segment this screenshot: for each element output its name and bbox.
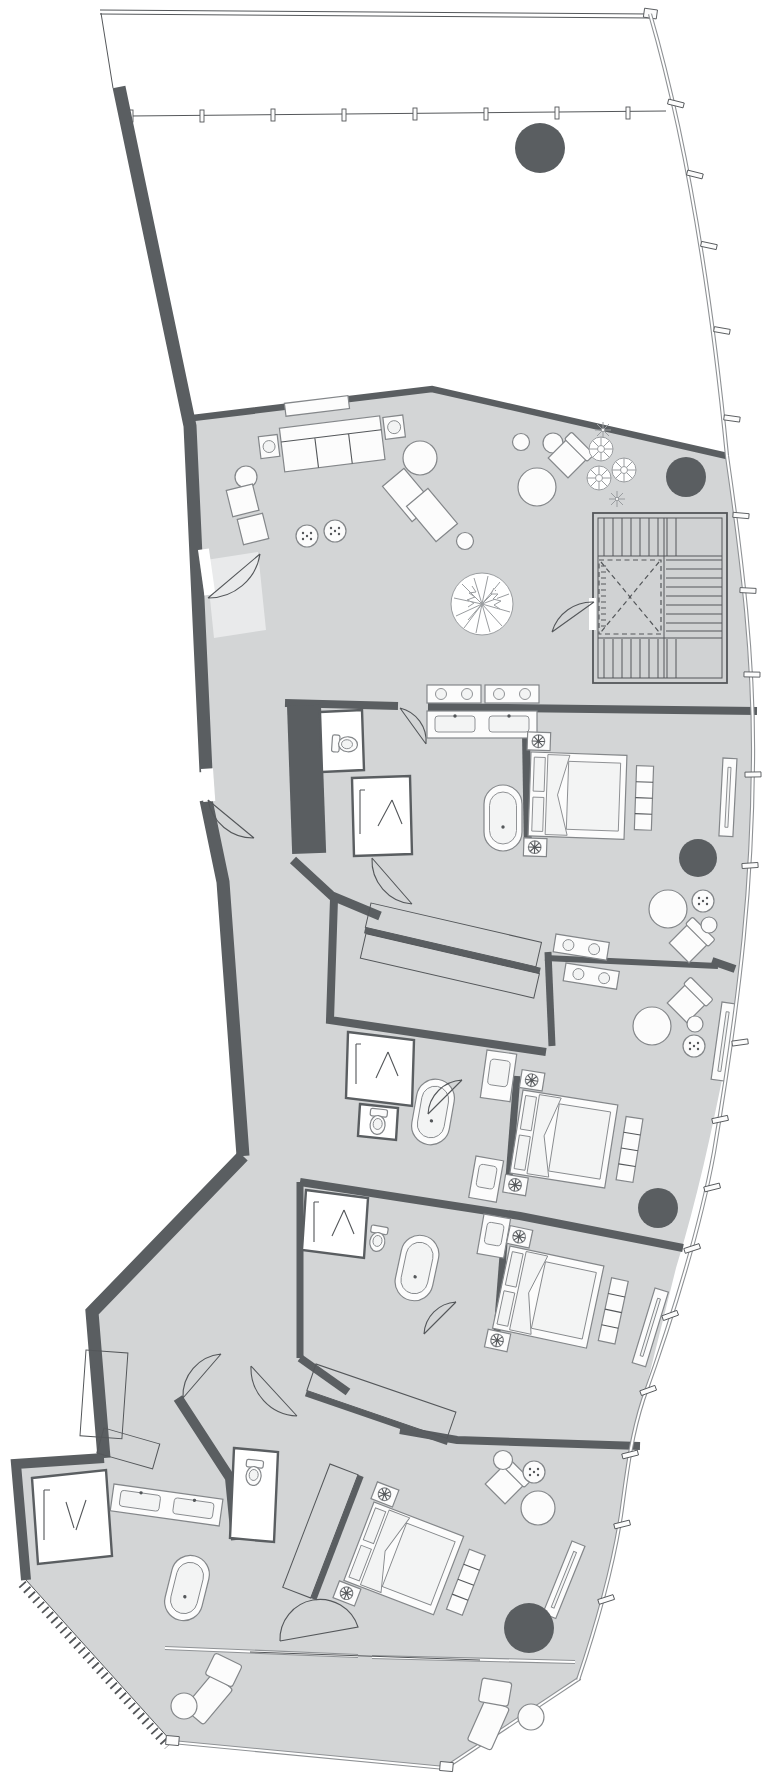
planter-box <box>485 685 539 703</box>
terrace-rail-posts <box>129 107 630 122</box>
terrace-top-edge <box>100 10 650 14</box>
bush-icon <box>587 466 611 490</box>
bathtub-icon <box>484 785 522 851</box>
side-table-round <box>633 1007 671 1045</box>
side-table-round <box>649 890 687 928</box>
column-icon <box>504 1603 554 1653</box>
plant-sprig-icon <box>595 422 611 438</box>
floor-plan-page <box>0 0 768 1775</box>
side-table-round <box>235 466 257 488</box>
coffee-table <box>403 441 437 475</box>
west-wall-upper <box>119 87 206 772</box>
armchair <box>226 484 259 517</box>
lamp-flower-icon <box>528 841 541 854</box>
bush-icon <box>612 458 636 482</box>
side-table-round <box>494 1451 513 1470</box>
entry-door-gap <box>201 768 215 802</box>
shower-room <box>352 776 412 856</box>
coffee-table <box>521 1491 555 1525</box>
double-vanity <box>427 711 537 738</box>
side-table-round <box>171 1693 197 1719</box>
coffee-table <box>518 468 556 506</box>
upper-terrace <box>100 8 666 173</box>
side-table-round <box>513 434 530 451</box>
column-icon <box>679 839 717 877</box>
side-table-round <box>518 1704 544 1730</box>
column-icon <box>638 1188 678 1228</box>
side-table-round <box>457 533 474 550</box>
terrace-rail <box>130 111 666 116</box>
lamp-flower-icon <box>532 735 545 748</box>
pouf-icon <box>692 890 714 912</box>
floor-plan-canvas <box>0 0 768 1775</box>
pouf-icon <box>296 525 318 547</box>
plant-sprig-icon <box>609 491 625 507</box>
pouf-icon <box>324 520 346 542</box>
column-icon <box>666 457 706 497</box>
terrace-left-edge <box>101 13 113 88</box>
column-icon <box>515 123 565 173</box>
shower-room <box>302 1190 368 1258</box>
bush-icon <box>589 437 613 461</box>
planter-box <box>427 685 481 703</box>
pouf-icon <box>683 1035 705 1057</box>
pouf-icon <box>523 1461 545 1483</box>
tree-icon <box>451 573 513 635</box>
armchair <box>237 513 269 545</box>
